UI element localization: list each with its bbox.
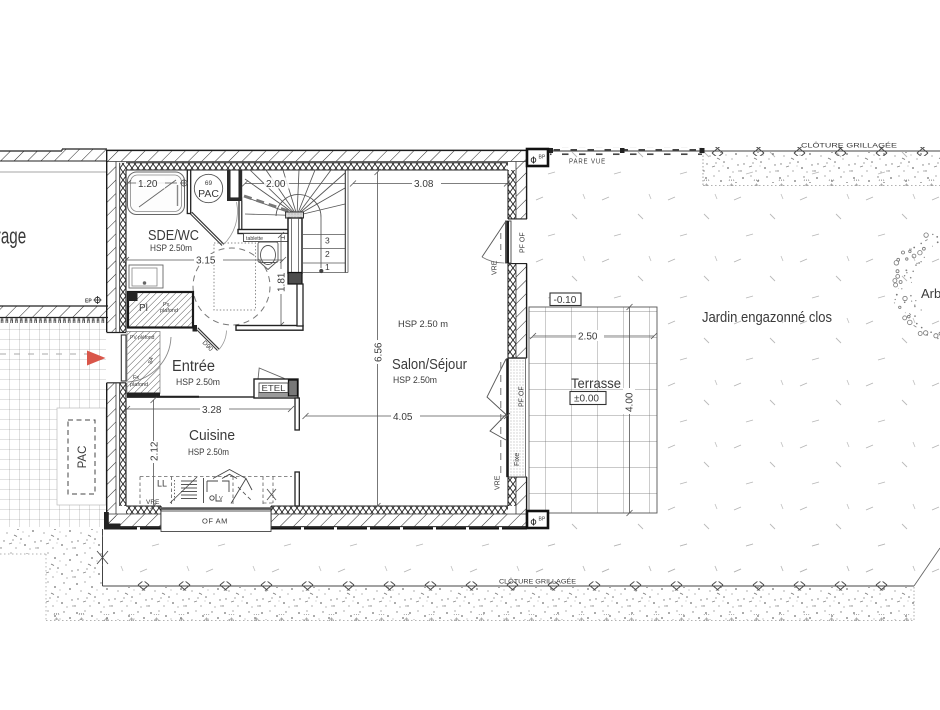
svg-text:LL: LL	[157, 479, 167, 489]
svg-text:EP: EP	[85, 299, 92, 305]
svg-text:HSP 2.50m: HSP 2.50m	[188, 447, 229, 458]
svg-text:3.28: 3.28	[202, 405, 222, 416]
svg-text:BP: BP	[539, 517, 546, 523]
svg-text:VRE: VRE	[492, 260, 499, 275]
svg-text:V: V	[219, 496, 223, 502]
svg-text:1.81: 1.81	[277, 272, 288, 292]
svg-text:4.00: 4.00	[625, 392, 636, 412]
svg-text:Jardin engazonné clos: Jardin engazonné clos	[702, 310, 832, 326]
svg-text:BP: BP	[539, 155, 546, 161]
svg-text:ETEL: ETEL	[262, 383, 286, 393]
svg-text:PV pléfond: PV pléfond	[130, 335, 155, 341]
svg-text:Fixe: Fixe	[514, 453, 521, 466]
svg-text:PF OF: PF OF	[519, 386, 526, 407]
svg-text:3: 3	[325, 236, 330, 246]
svg-text:VRE: VRE	[495, 475, 502, 490]
svg-text:1.20: 1.20	[138, 179, 158, 190]
svg-text:VRE: VRE	[146, 499, 160, 506]
svg-text:CLÔTURE GRILLAGÉE: CLÔTURE GRILLAGÉE	[499, 577, 577, 586]
svg-text:PF OF: PF OF	[520, 232, 527, 253]
svg-text:Terrasse: Terrasse	[571, 375, 621, 391]
svg-text:3.15: 3.15	[196, 256, 216, 267]
svg-text:HSP 2.50m: HSP 2.50m	[150, 243, 192, 254]
svg-text:2.00: 2.00	[266, 179, 286, 190]
svg-text:-0.10: -0.10	[554, 295, 577, 306]
svg-text:2: 2	[325, 249, 330, 259]
svg-text:1: 1	[325, 262, 330, 272]
svg-text:PAC: PAC	[198, 188, 219, 200]
svg-text:HSP 2.50m: HSP 2.50m	[176, 377, 220, 388]
svg-text:Entrée: Entrée	[172, 358, 215, 375]
svg-text:PAC: PAC	[77, 446, 89, 469]
svg-text:Pl: Pl	[139, 303, 148, 314]
svg-text:±0.00: ±0.00	[574, 394, 599, 405]
svg-text:HSP 2.50 m: HSP 2.50 m	[398, 319, 448, 330]
svg-text:69: 69	[205, 180, 213, 187]
svg-text:PARE VUE: PARE VUE	[569, 159, 606, 166]
svg-text:plafond: plafond	[160, 308, 178, 314]
svg-text:OF AM: OF AM	[202, 517, 228, 526]
svg-text:3.08: 3.08	[414, 179, 434, 190]
svg-text:Fx: Fx	[133, 375, 139, 381]
svg-text:CLÔTURE GRILLAGÉE: CLÔTURE GRILLAGÉE	[801, 141, 898, 150]
svg-text:2.12: 2.12	[150, 441, 161, 461]
svg-text:HSP 2.50m: HSP 2.50m	[393, 375, 437, 386]
svg-text:6.56: 6.56	[374, 342, 385, 362]
svg-text:Arbre: Arbre	[921, 286, 940, 301]
svg-text:4.05: 4.05	[393, 412, 413, 423]
svg-text:tablette: tablette	[246, 236, 263, 242]
svg-text:plafond: plafond	[130, 382, 148, 388]
svg-text:Salon/Séjour: Salon/Séjour	[392, 356, 467, 373]
svg-text:Garage: Garage	[0, 225, 26, 249]
svg-text:2.50: 2.50	[578, 332, 598, 343]
svg-text:SDE/WC: SDE/WC	[148, 228, 199, 244]
svg-text:Cuisine: Cuisine	[189, 427, 235, 444]
